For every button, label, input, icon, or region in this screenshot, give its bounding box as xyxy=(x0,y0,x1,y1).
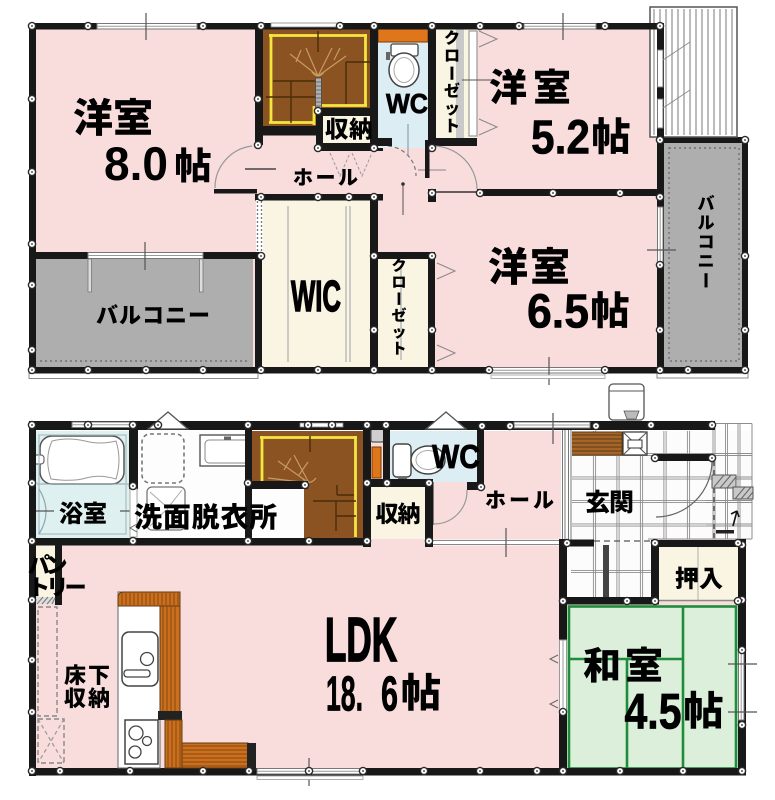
svg-text:8.0: 8.0 xyxy=(104,137,168,190)
svg-text:WIC: WIC xyxy=(291,272,341,321)
svg-text:6: 6 xyxy=(381,668,398,722)
svg-text:18.: 18. xyxy=(326,668,363,722)
svg-text:WC: WC xyxy=(386,88,428,119)
svg-text:LDK: LDK xyxy=(325,606,397,675)
svg-text:5.2: 5.2 xyxy=(531,112,590,165)
svg-text:WC: WC xyxy=(432,438,480,475)
svg-text:4.5: 4.5 xyxy=(625,684,682,740)
svg-text:6.5: 6.5 xyxy=(527,286,589,339)
